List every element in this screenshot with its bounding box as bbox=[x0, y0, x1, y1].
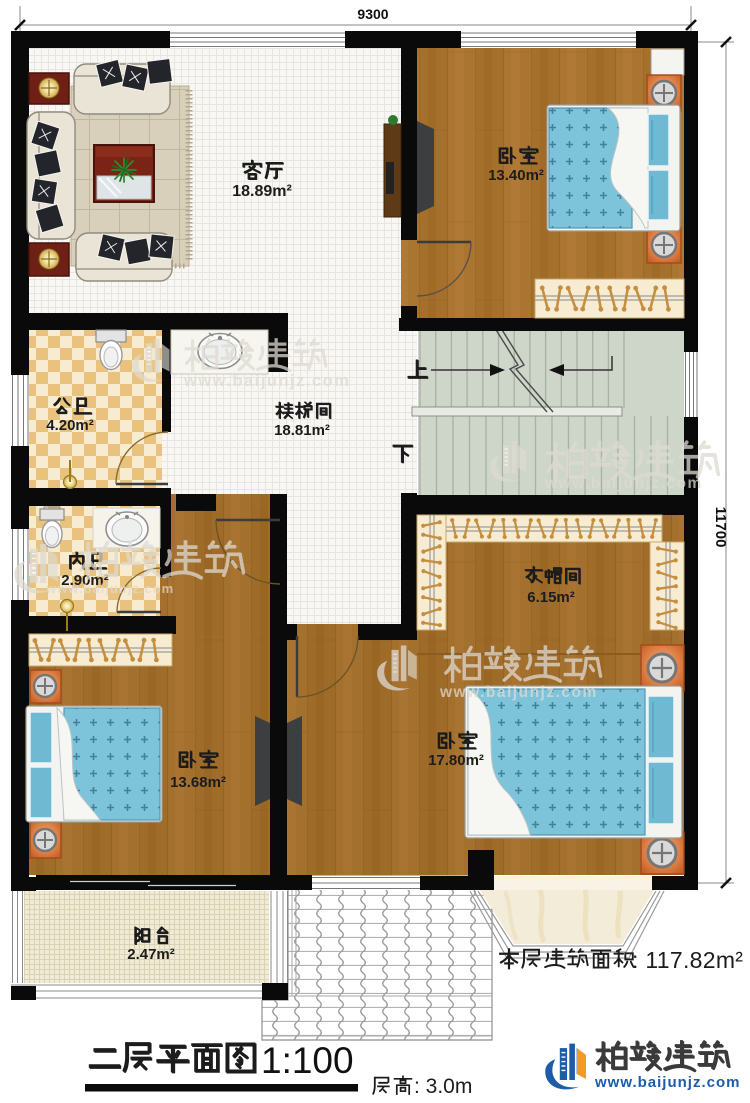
svg-text:4.20m²: 4.20m² bbox=[46, 417, 94, 434]
svg-text:www.baijunjz.com: www.baijunjz.com bbox=[183, 372, 350, 390]
svg-text:www.baijunjz.com: www.baijunjz.com bbox=[544, 475, 703, 492]
svg-text:17.80m²: 17.80m² bbox=[428, 752, 484, 769]
svg-text:13.40m²: 13.40m² bbox=[488, 167, 544, 184]
svg-text:6.15m²: 6.15m² bbox=[527, 589, 575, 606]
svg-text:13.68m²: 13.68m² bbox=[170, 774, 226, 791]
svg-text:www.baijunjz.com: www.baijunjz.com bbox=[45, 581, 174, 596]
svg-text:www.baijunjz.com: www.baijunjz.com bbox=[439, 684, 598, 701]
svg-text:9300: 9300 bbox=[357, 6, 388, 22]
svg-text:18.81m²: 18.81m² bbox=[274, 422, 330, 439]
svg-text:11700: 11700 bbox=[712, 507, 729, 548]
svg-text:: 117.82m²: : 117.82m² bbox=[632, 947, 743, 973]
svg-text:: 3.0m: : 3.0m bbox=[414, 1075, 472, 1098]
svg-text:www.baijunjz.com: www.baijunjz.com bbox=[594, 1074, 740, 1091]
svg-text:1:100: 1:100 bbox=[261, 1040, 354, 1081]
svg-text:2.47m²: 2.47m² bbox=[127, 946, 175, 963]
svg-text:18.89m²: 18.89m² bbox=[232, 183, 292, 200]
